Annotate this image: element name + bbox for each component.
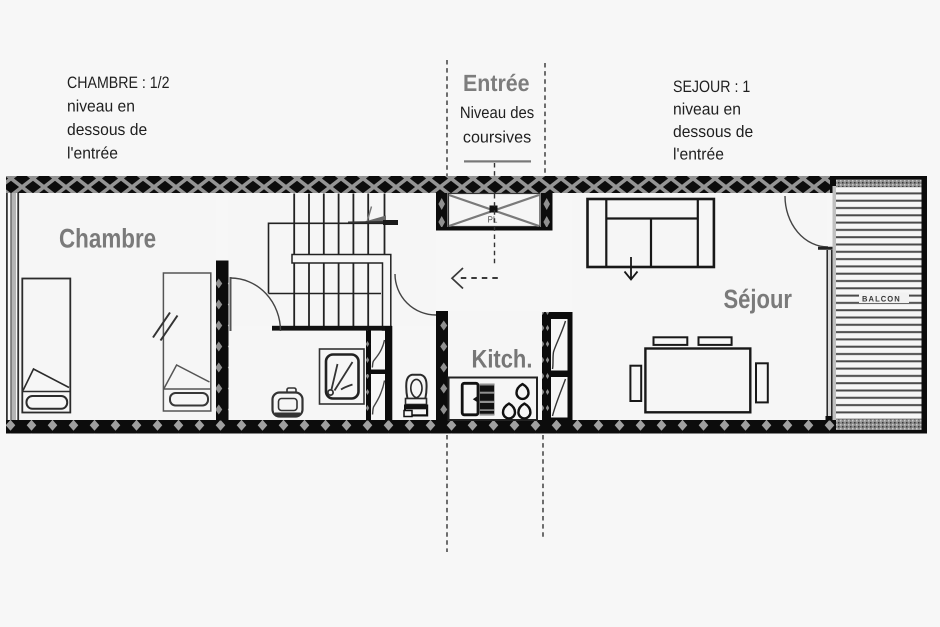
svg-text:niveau en: niveau en — [67, 98, 135, 116]
svg-text:l'entrée: l'entrée — [673, 146, 724, 164]
svg-text:PL: PL — [488, 215, 498, 225]
svg-text:Séjour: Séjour — [724, 284, 792, 314]
svg-text:l'entrée: l'entrée — [67, 145, 118, 163]
svg-text:Chambre: Chambre — [59, 224, 156, 254]
svg-text:coursives: coursives — [463, 129, 531, 147]
svg-text:SEJOUR : 1: SEJOUR : 1 — [673, 78, 750, 96]
svg-text:CHAMBRE : 1/2: CHAMBRE : 1/2 — [67, 74, 170, 92]
svg-text:dessous de: dessous de — [67, 121, 147, 139]
svg-text:BALCON: BALCON — [862, 295, 901, 304]
svg-text:niveau en: niveau en — [673, 101, 741, 119]
svg-text:Entrée: Entrée — [463, 70, 530, 96]
svg-text:Kitch.: Kitch. — [472, 346, 533, 374]
svg-text:dessous de: dessous de — [673, 123, 753, 141]
svg-text:Niveau des: Niveau des — [460, 104, 534, 122]
